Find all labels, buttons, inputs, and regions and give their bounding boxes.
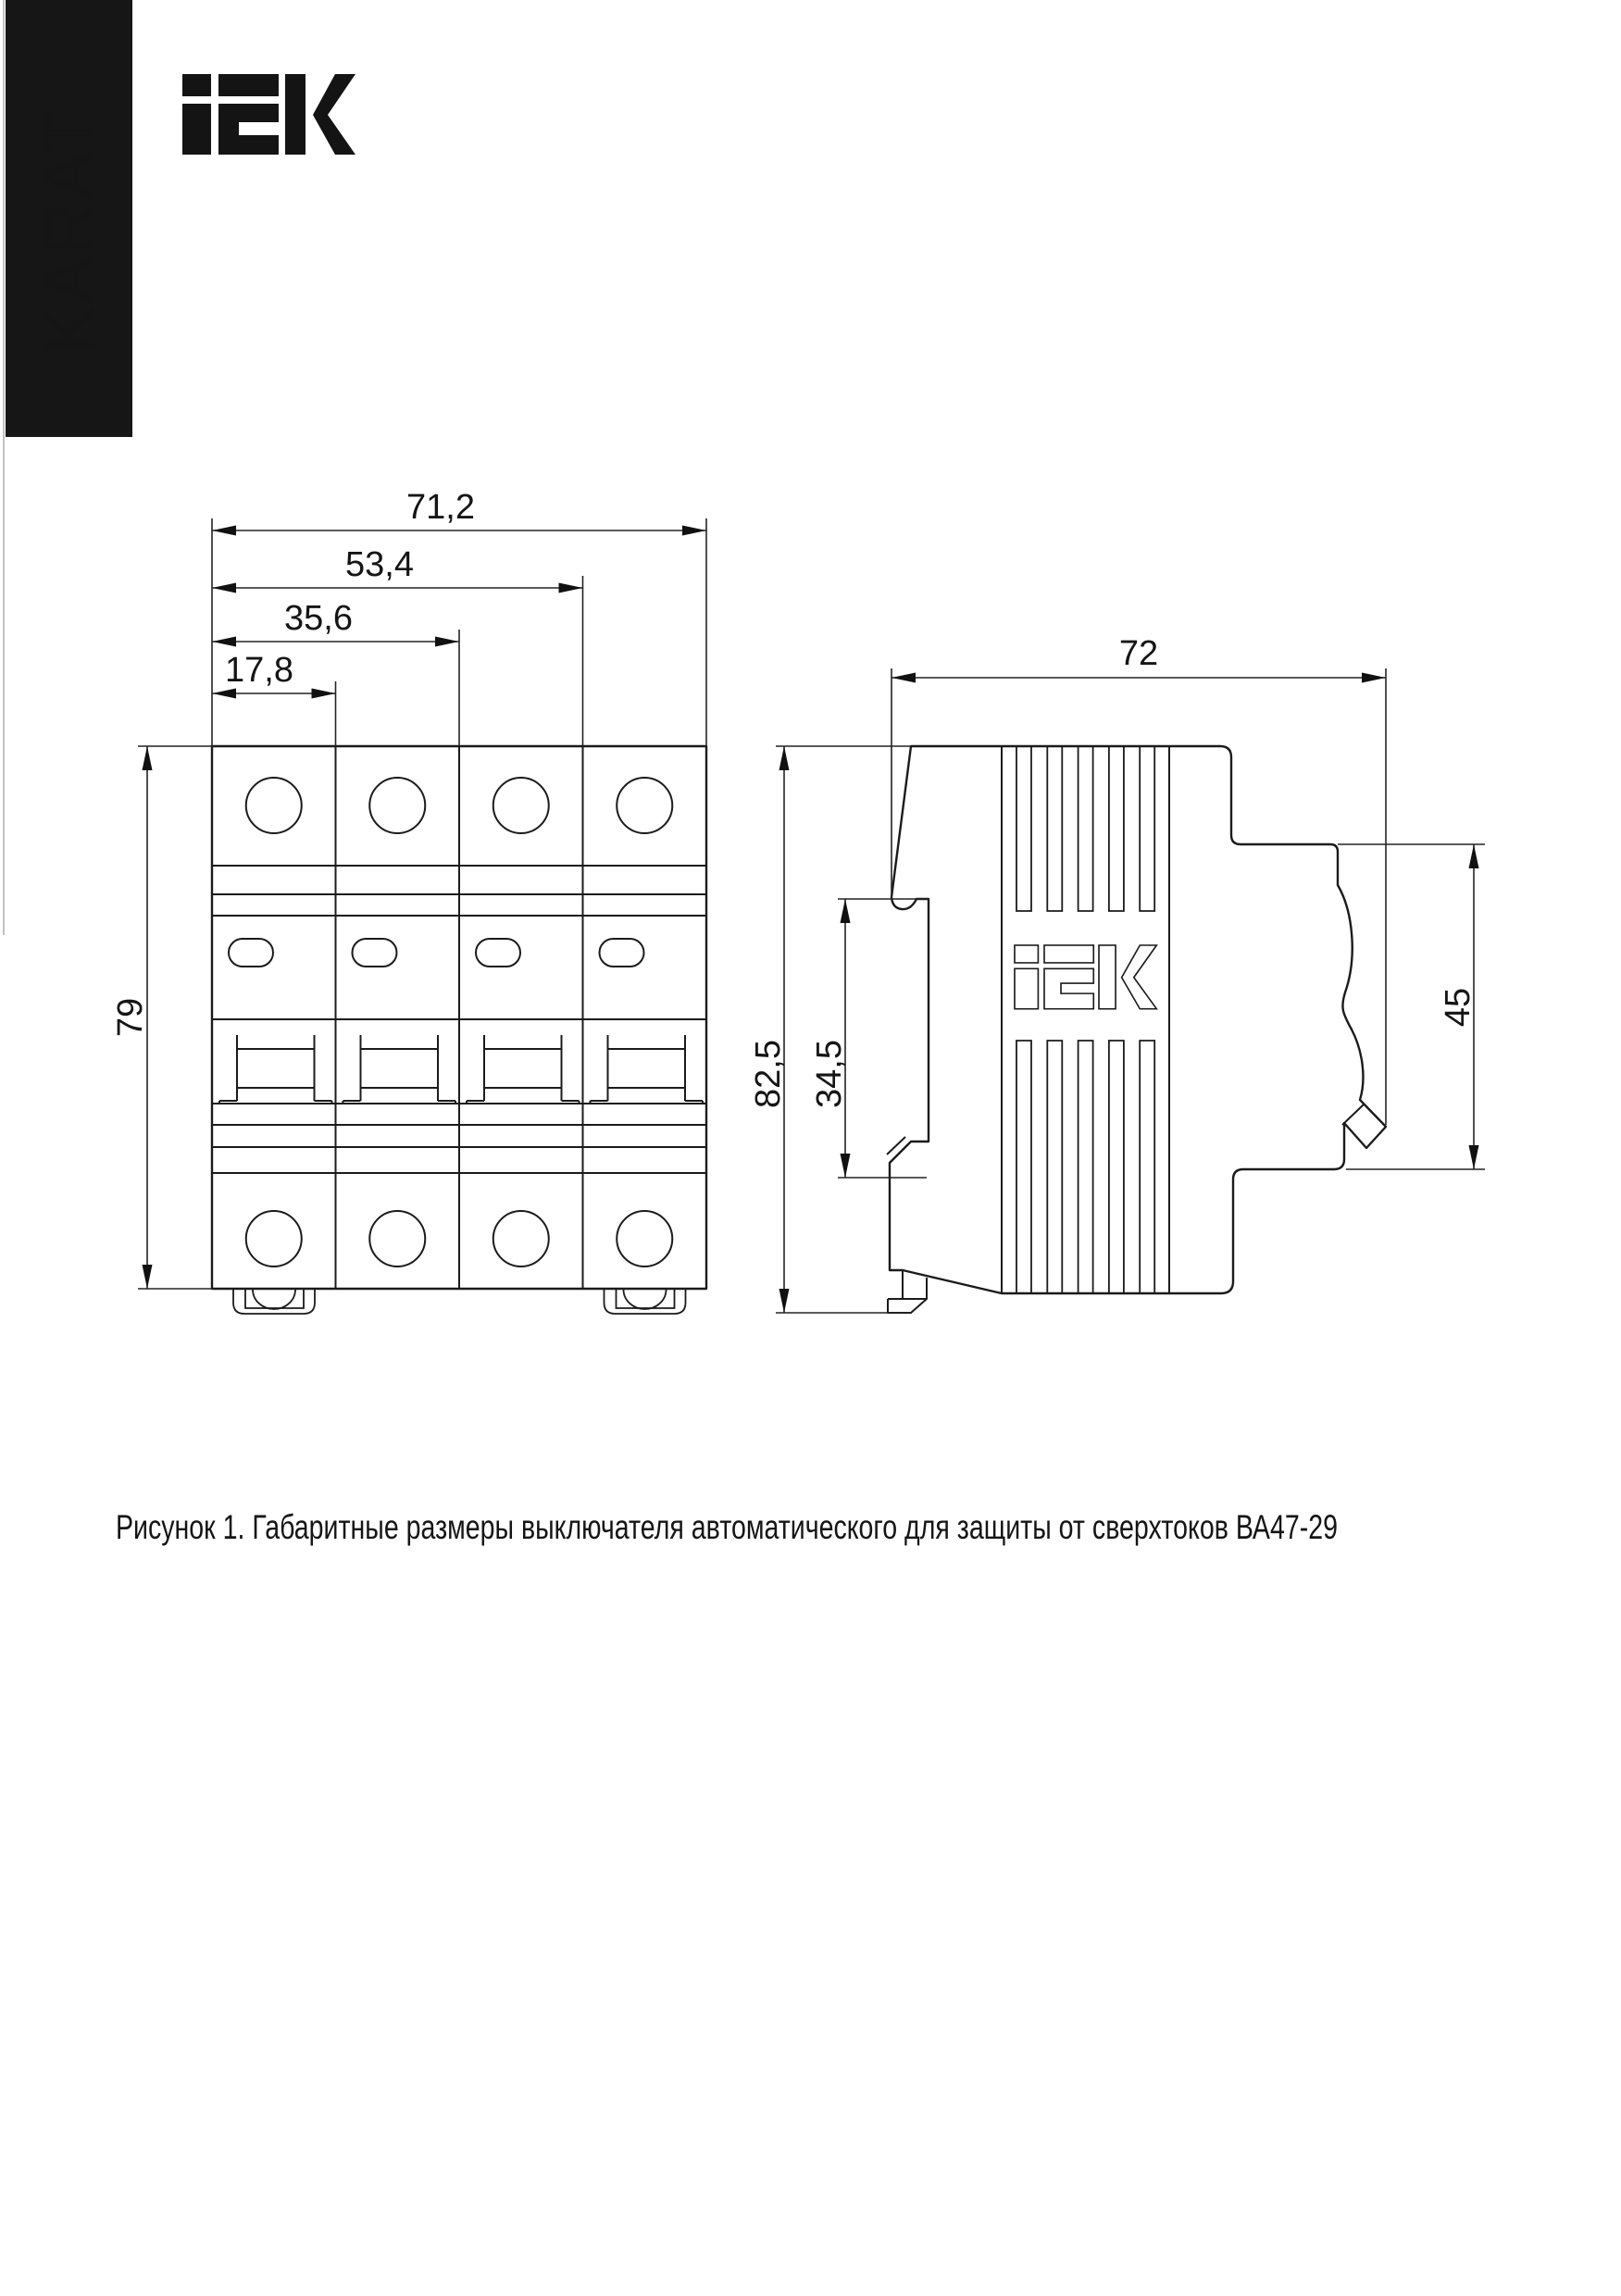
front-view-dimensions: 71,2 53,4 35,6 17,8 79 — [111, 488, 706, 1289]
dim-front-face: 45 — [1439, 988, 1478, 1027]
technical-drawing: KARAT 71,2 53,4 35,6 17,8 79 — [0, 0, 1621, 2296]
iek-embossed-logo — [1015, 945, 1156, 1009]
dim-width-1p: 17,8 — [225, 651, 293, 690]
dim-width-2p: 35,6 — [284, 599, 353, 638]
karat-banner: KARAT — [6, 0, 132, 437]
iek-logo — [182, 74, 355, 155]
side-view: 72 82,5 34,5 45 — [749, 634, 1485, 1313]
dim-width-total: 71,2 — [406, 488, 475, 527]
front-view: 71,2 53,4 35,6 17,8 79 — [111, 488, 706, 1314]
side-view-dimensions: 72 82,5 34,5 45 — [749, 634, 1485, 1313]
datasheet-page: KARAT 71,2 53,4 35,6 17,8 79 — [0, 0, 1621, 2296]
dim-height-front: 79 — [111, 998, 150, 1037]
dim-height-total: 82,5 — [749, 1040, 788, 1108]
dim-width-3p: 53,4 — [345, 545, 414, 584]
vent-slots-lower — [1016, 1041, 1154, 1293]
banner-label: KARAT — [28, 109, 109, 354]
dim-depth: 72 — [1119, 634, 1158, 673]
vent-slots-upper — [1016, 746, 1154, 911]
figure-caption: Рисунок 1. Габаритные размеры выключател… — [116, 1508, 1338, 1546]
dim-din-slot: 34,5 — [810, 1040, 849, 1108]
